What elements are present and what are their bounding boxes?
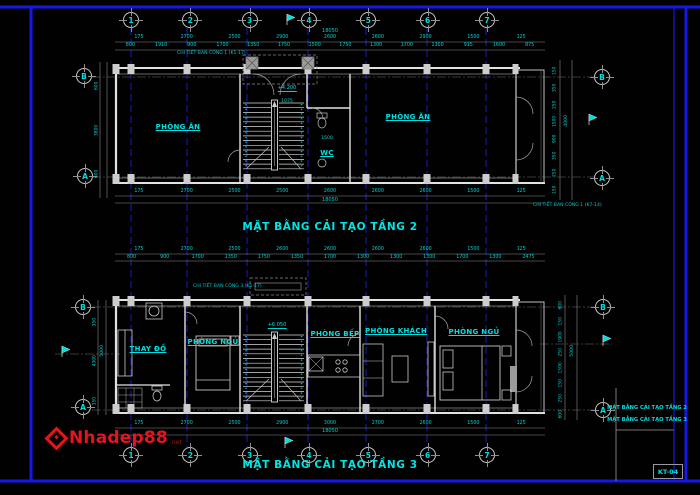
- dim-value: 1350: [280, 256, 313, 261]
- dim-value: 1300: [380, 256, 413, 261]
- plan2-vdims-left: 6003800600: [94, 64, 101, 196]
- plan3-dims-top-major: 1752700250026002600260026001500125: [115, 248, 545, 253]
- dim-value: 2600: [306, 190, 354, 195]
- cad-sheet: 1234567 1234567 B A B A B A B A 18050 17…: [0, 0, 700, 495]
- dim-value: 915: [453, 44, 484, 49]
- dim-value: 1300: [422, 44, 453, 49]
- grid-bubble-row-a: A: [594, 170, 610, 186]
- dim-value: 2600: [258, 248, 306, 253]
- dim-value: 1500: [449, 248, 497, 253]
- grid-bubble: 7: [479, 447, 495, 463]
- grid-bubble: 2: [182, 12, 198, 28]
- dim-value: 1900: [558, 329, 565, 345]
- dim-value: 1300: [479, 256, 512, 261]
- plan3-vdim-left-total: 5000: [101, 345, 106, 357]
- dim-value: 175: [115, 190, 163, 195]
- grid-bubble-row-b: B: [594, 69, 610, 85]
- plan3-dims-bottom: 1752700250029003000270026001500125: [115, 422, 545, 427]
- plan2-room-wc: WC: [320, 150, 333, 157]
- dim-value: 2600: [402, 248, 450, 253]
- dim-value: 1750: [247, 256, 280, 261]
- dim-value: 1300: [347, 256, 380, 261]
- dim-value: 2600: [354, 248, 402, 253]
- plan2-stair: [243, 100, 304, 170]
- grid-bubble: 1: [123, 447, 139, 463]
- plan3-room-living: PHÒNG KHÁCH: [365, 328, 427, 335]
- dim-value: 1350: [214, 256, 247, 261]
- dim-value: 250: [558, 391, 565, 407]
- dim-value: 900: [552, 130, 559, 147]
- dim-value: 1300: [361, 44, 392, 49]
- titleblock-line2: MẶT BẰNG CẢI TẠO TẦNG 3: [607, 417, 687, 423]
- dim-value: 350: [92, 381, 99, 420]
- dim-value: 2900: [402, 36, 450, 41]
- grid-bubble: 3: [242, 12, 258, 28]
- plan3-room-changing: THAY ĐỒ: [130, 346, 167, 353]
- plan2-elevation-mark: +4.200: [278, 86, 297, 92]
- dim-value: 125: [497, 190, 545, 195]
- grid-bubble: 6: [420, 447, 436, 463]
- dim-value: 2600: [402, 190, 450, 195]
- dim-value: 1750: [269, 44, 300, 49]
- dim-value: 2600: [354, 36, 402, 41]
- plan3-room-kitchen: PHÒNG BẾP: [311, 331, 360, 338]
- dim-value: 1700: [391, 44, 422, 49]
- grid-bubble: 1: [123, 12, 139, 28]
- plan2-dims-top-minor: 8001910900170013501750150017501300170013…: [115, 44, 545, 49]
- dim-value: 1700: [181, 256, 214, 261]
- plan2-vdim-total: 4000: [565, 115, 570, 127]
- dim-value: 2700: [354, 422, 402, 427]
- grid-bubble: 5: [360, 12, 376, 28]
- dim-value: 250: [558, 345, 565, 361]
- plan2-doors: [228, 74, 533, 162]
- dim-value: 2475: [512, 256, 545, 261]
- dim-value: 2900: [258, 36, 306, 41]
- dim-value: 600: [94, 64, 101, 108]
- grid-bubble: 6: [420, 12, 436, 28]
- dim-value: 2500: [258, 190, 306, 195]
- dim-value: 2600: [306, 248, 354, 253]
- grid-bubble-row-b: B: [595, 299, 611, 315]
- plan3-doors: [185, 312, 532, 392]
- dim-value: 900: [176, 44, 207, 49]
- dim-value: 150: [552, 181, 559, 198]
- dim-value: 1500: [449, 422, 497, 427]
- dim-value: 125: [497, 422, 545, 427]
- dim-value: 2900: [258, 422, 306, 427]
- plan3-title: MẶT BẰNG CẢI TẠO TẦNG 3: [242, 460, 417, 471]
- plan3-stair: [243, 332, 304, 402]
- plan2-title: MẶT BẰNG CẢI TẠO TẦNG 2: [242, 222, 417, 233]
- dim-value: 1600: [484, 44, 515, 49]
- grid-bubble: 4: [301, 12, 317, 28]
- dim-value: 250: [552, 164, 559, 181]
- plan2-stair-dim: 1075: [281, 100, 293, 105]
- plan3-vdims-right: 60015019002501500150250600: [558, 298, 565, 422]
- plan3-room-bed-left: PHÒNG NGỦ: [188, 339, 239, 346]
- section-flag-icon: [62, 346, 70, 357]
- grid-bubble-row-b: B: [76, 68, 92, 84]
- dim-value: 2500: [211, 36, 259, 41]
- dim-value: 600: [558, 298, 565, 314]
- grid-bubble-row-a: A: [77, 168, 93, 184]
- plan3-walls: [115, 300, 545, 413]
- plan3-vdim-total: 5000: [571, 345, 576, 357]
- dim-value: 175: [115, 248, 163, 253]
- dim-value: 2700: [163, 422, 211, 427]
- dim-value: 3000: [306, 422, 354, 427]
- dim-value: 2600: [306, 36, 354, 41]
- plan3-vdims-left: 3504300350: [92, 302, 99, 420]
- dim-value: 2700: [163, 190, 211, 195]
- dim-value: 1500: [449, 36, 497, 41]
- watermark-diamond-icon: [44, 426, 68, 450]
- dim-value: 2500: [211, 422, 259, 427]
- dim-value: 350: [552, 79, 559, 96]
- dim-value: 1700: [207, 44, 238, 49]
- plan3-balcony-note: CHI TIẾT BAN CÔNG 3 (K1-17): [193, 285, 262, 290]
- dim-value: 250: [552, 96, 559, 113]
- dim-value: 1910: [146, 44, 177, 49]
- dim-value: 2500: [211, 248, 259, 253]
- plan2-room-dining-right: PHÒNG ĂN: [386, 114, 431, 121]
- plan3-dims-top-minor: 8009001700135017501350170013001300130017…: [115, 256, 545, 261]
- grid-bubble: 7: [479, 12, 495, 28]
- dim-value: 4300: [92, 341, 99, 380]
- watermark: Nhadep88 .net: [48, 428, 182, 448]
- dim-value: 1500: [299, 44, 330, 49]
- dim-value: 600: [94, 152, 101, 196]
- dim-value: 800: [115, 256, 148, 261]
- dim-value: 1500: [449, 190, 497, 195]
- dim-value: 125: [497, 248, 545, 253]
- grid-bubble-row-a: A: [75, 399, 91, 415]
- dim-value: 2600: [402, 422, 450, 427]
- titleblock-line1: MẶT BẰNG CẢI TẠO TẦNG 2: [607, 405, 687, 411]
- dim-value: 600: [558, 407, 565, 423]
- dim-value: 150: [552, 62, 559, 79]
- grid-axes: [131, 28, 486, 462]
- dim-value: 175: [115, 422, 163, 427]
- plan2-room-dining-left: PHÒNG ĂN: [156, 124, 201, 131]
- dimension-lines: [98, 42, 577, 435]
- plan2-dim-total-top: 18050: [115, 29, 545, 34]
- plan2-wc-dim: 1500: [321, 137, 333, 142]
- dim-value: 125: [497, 36, 545, 41]
- dim-value: 1700: [313, 256, 346, 261]
- dim-value: 150: [558, 314, 565, 330]
- watermark-suffix: .net: [170, 439, 182, 446]
- dim-value: 350: [552, 147, 559, 164]
- section-flag-icon: [589, 114, 597, 125]
- dim-value: 2700: [163, 248, 211, 253]
- plan2-dims-bottom: 1752700250025002600260026001500125: [115, 190, 545, 195]
- dim-value: 1350: [238, 44, 269, 49]
- grid-bubble: 2: [182, 447, 198, 463]
- dim-value: 1500: [558, 360, 565, 376]
- dim-value: 2500: [211, 190, 259, 195]
- dim-value: 1700: [446, 256, 479, 261]
- dim-value: 1750: [330, 44, 361, 49]
- dim-value: 150: [558, 376, 565, 392]
- plan3-room-bed-right: PHÒNG NGỦ: [449, 329, 500, 336]
- dim-value: 2600: [354, 190, 402, 195]
- dim-value: 875: [514, 44, 545, 49]
- dim-value: 1500: [552, 113, 559, 130]
- dim-value: 900: [148, 256, 181, 261]
- dim-value: 2700: [163, 36, 211, 41]
- grid-centerlines: [55, 77, 612, 410]
- plan3-elevation-mark: +6.050: [268, 323, 287, 329]
- plan2-balcony-note-right: CHI TIẾT BAN CÔNG 1 (K7-14): [533, 204, 602, 209]
- dim-value: 3800: [94, 108, 101, 152]
- grid-bubble-row-b: B: [75, 299, 91, 315]
- watermark-name: Nhadep88: [69, 428, 168, 448]
- plan2-dim-total-bottom: 18050: [115, 198, 545, 203]
- dim-value: 175: [115, 36, 163, 41]
- plan2-balcony-note: CHI TIẾT BAN CÔNG 1 (K1-17): [177, 52, 246, 57]
- drawing-code-box: KT-04: [653, 464, 683, 479]
- dim-value: 350: [92, 302, 99, 341]
- section-flag-icon: [603, 335, 611, 346]
- plan2-dims-top-major: 1752700250029002600260029001500125: [115, 36, 545, 41]
- plan2-vdims-right: 1503502501500900350250150: [552, 62, 559, 198]
- plan3-furniture: [118, 303, 511, 408]
- dim-value: 1300: [413, 256, 446, 261]
- grid-bubbles-top: 1234567: [123, 12, 495, 28]
- dim-value: 800: [115, 44, 146, 49]
